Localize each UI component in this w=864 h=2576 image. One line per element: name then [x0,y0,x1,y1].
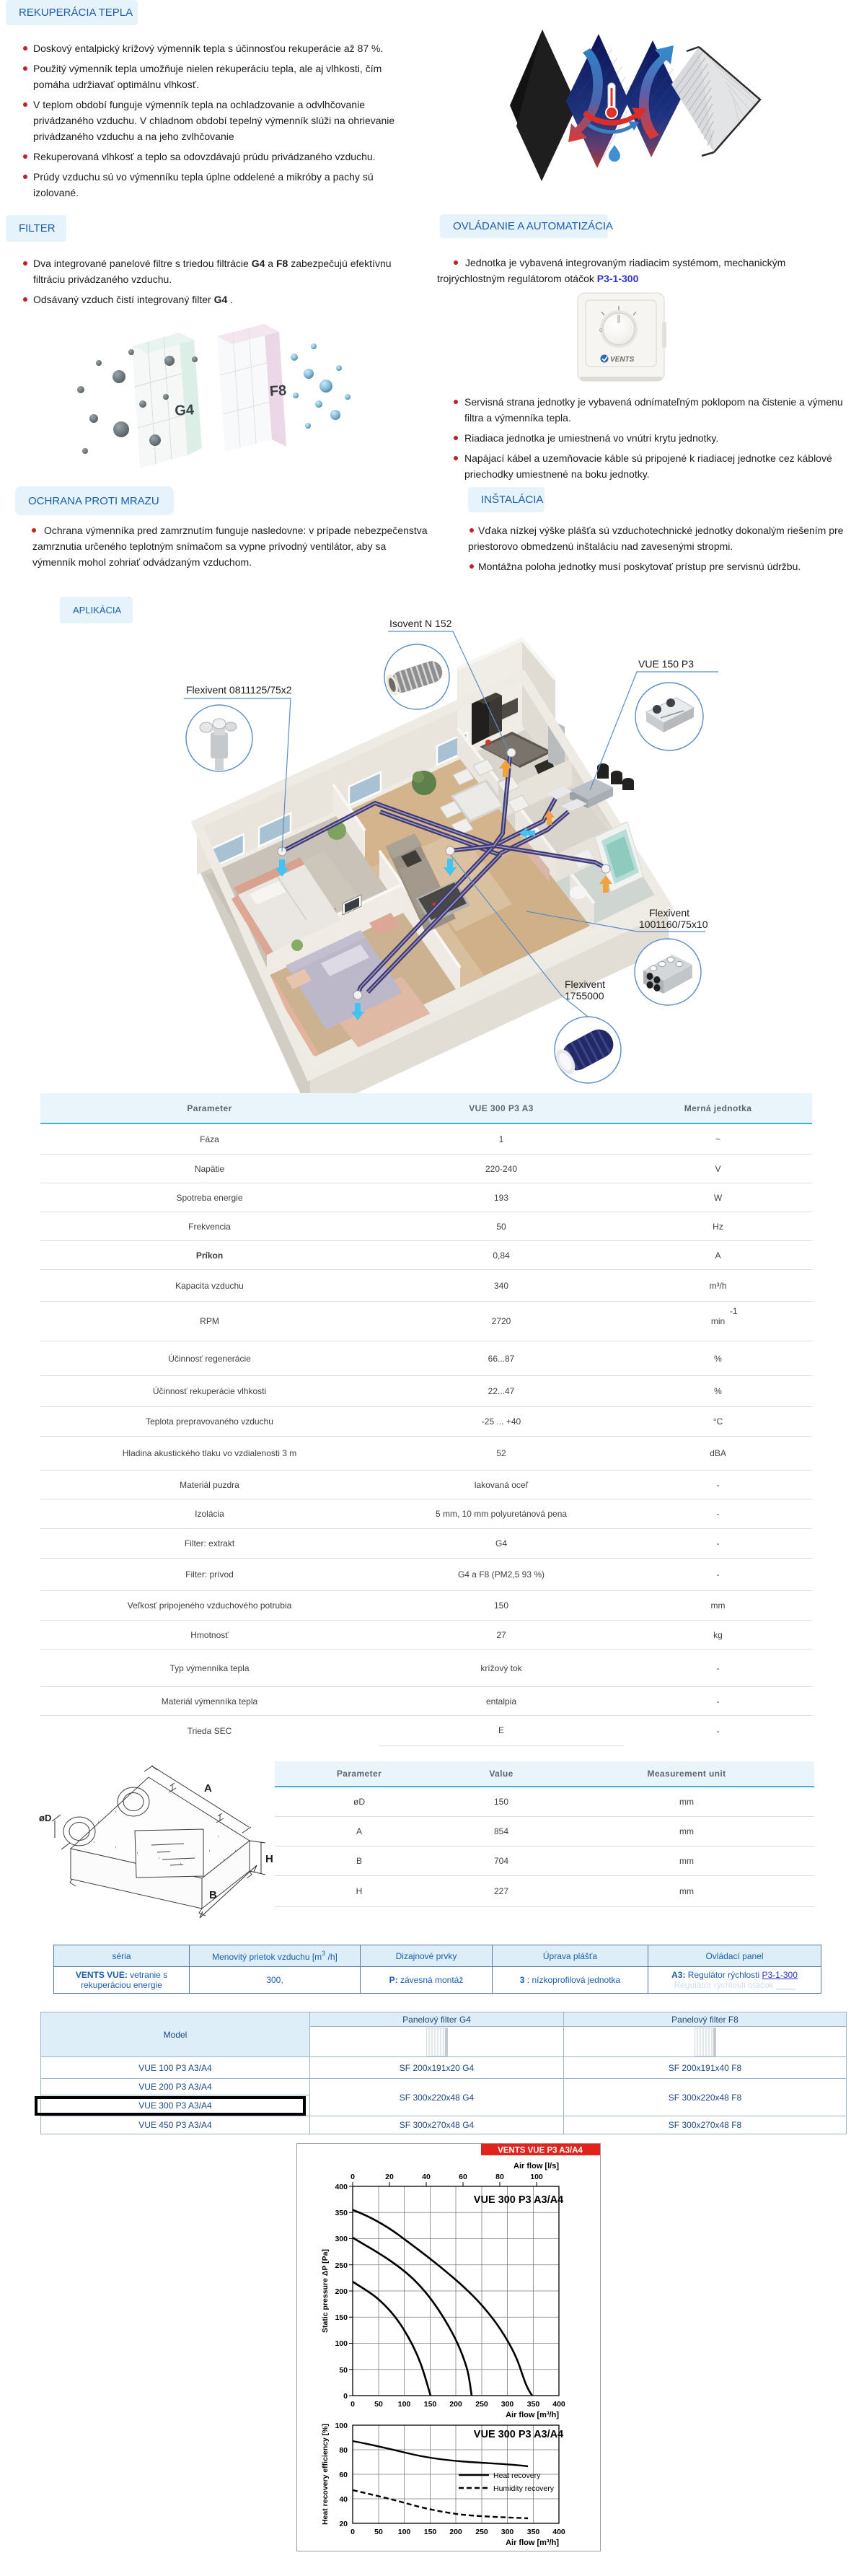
svg-text:Humidity recovery: Humidity recovery [493,2484,555,2493]
svg-text:80: 80 [495,2173,504,2181]
svg-text:350: 350 [335,2209,348,2217]
svg-text:50: 50 [374,2400,383,2409]
svg-text:Static pressure ΔP [Pa]: Static pressure ΔP [Pa] [321,2249,330,2333]
svg-text:100: 100 [335,2422,348,2430]
svg-text:G4: G4 [175,402,195,419]
svg-text:300: 300 [501,2528,514,2536]
svg-text:50: 50 [339,2366,348,2375]
svg-text:VUE 300 P3 A3/A4: VUE 300 P3 A3/A4 [474,2194,563,2206]
svg-text:250: 250 [475,2400,488,2409]
svg-text:Flexivent: Flexivent [649,907,689,919]
svg-text:200: 200 [335,2287,348,2296]
svg-text:0: 0 [343,2392,348,2401]
svg-text:50: 50 [374,2528,383,2536]
svg-text:Heat recovery efficiency [%]: Heat recovery efficiency [%] [321,2424,330,2525]
svg-text:60: 60 [339,2471,348,2479]
svg-text:400: 400 [552,2528,565,2536]
svg-text:20: 20 [339,2520,348,2528]
svg-text:80: 80 [339,2446,348,2455]
svg-text:VUE 150 P3: VUE 150 P3 [638,658,694,670]
svg-text:H: H [265,1853,273,1865]
svg-text:150: 150 [424,2528,437,2536]
svg-text:øD: øD [39,1813,51,1823]
svg-text:100: 100 [530,2173,543,2181]
svg-text:150: 150 [335,2313,348,2322]
svg-text:250: 250 [335,2261,348,2270]
svg-text:40: 40 [339,2495,348,2504]
svg-text:300: 300 [501,2400,514,2409]
svg-text:0: 0 [351,2528,355,2536]
svg-text:150: 150 [424,2400,437,2409]
svg-text:B: B [209,1889,217,1901]
svg-text:VUE 300 P3 A3/A4: VUE 300 P3 A3/A4 [474,2429,563,2440]
svg-text:250: 250 [475,2528,488,2536]
svg-text:1755000: 1755000 [565,990,604,1002]
svg-text:1001160/75x10: 1001160/75x10 [639,919,708,930]
svg-text:200: 200 [449,2528,462,2536]
svg-text:40: 40 [422,2173,431,2181]
svg-text:60: 60 [459,2173,467,2181]
svg-text:400: 400 [335,2183,348,2191]
svg-text:200: 200 [449,2400,462,2409]
svg-text:300: 300 [335,2235,348,2243]
svg-text:VENTS VUE P3 A3/A4: VENTS VUE P3 A3/A4 [498,2147,583,2155]
svg-text:Air flow [m³/h]: Air flow [m³/h] [506,2411,559,2419]
svg-text:100: 100 [335,2339,348,2348]
svg-text:A: A [204,1782,212,1795]
svg-text:0: 0 [599,328,602,333]
svg-text:F8: F8 [269,382,287,400]
svg-text:100: 100 [398,2400,411,2409]
svg-text:Flexivent: Flexivent [565,978,605,990]
svg-text:100: 100 [398,2528,411,2536]
svg-text:350: 350 [527,2528,540,2536]
svg-text:350: 350 [527,2400,540,2409]
svg-text:Isovent N 152: Isovent N 152 [389,618,452,629]
svg-text:Air flow [l/s]: Air flow [l/s] [513,2162,559,2170]
svg-text:Air flow [m³/h]: Air flow [m³/h] [506,2538,559,2547]
svg-text:Flexivent 0811125/75x2: Flexivent 0811125/75x2 [186,684,292,696]
svg-text:20: 20 [385,2173,394,2181]
svg-text:0: 0 [351,2400,355,2409]
svg-text:VENTS: VENTS [610,356,635,364]
svg-text:0: 0 [351,2173,355,2181]
svg-text:Heat recovery: Heat recovery [493,2471,541,2480]
svg-text:400: 400 [552,2400,565,2409]
